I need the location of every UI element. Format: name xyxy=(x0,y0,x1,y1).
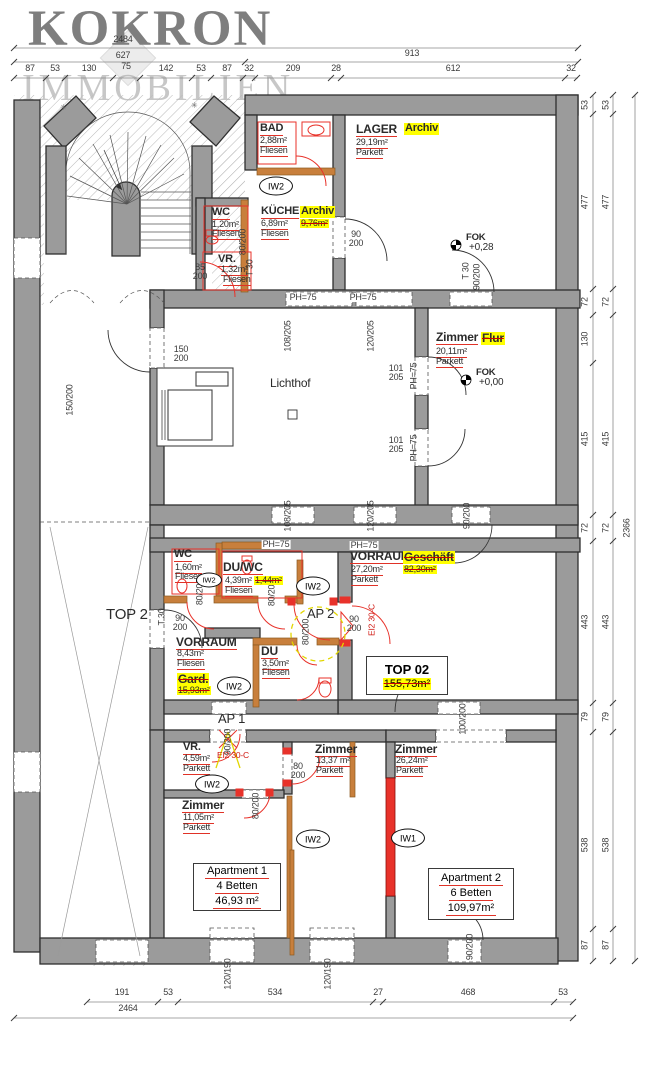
plan-label-104: +0,00 xyxy=(479,378,503,389)
plan-label-70: 90 200 xyxy=(173,614,187,633)
plan-label-136: Parkett xyxy=(183,823,210,834)
plan-label-69: EI2 30-C xyxy=(368,604,377,636)
plan-label-71: T 30 xyxy=(157,608,166,625)
plan-label-115: 82,30m² xyxy=(403,565,437,574)
room-zimmer-flur-newuse: Flur xyxy=(481,332,505,345)
apartment2-box-line: 6 Betten xyxy=(449,887,494,901)
wall-openings xyxy=(14,217,506,962)
plan-label-7: 142 xyxy=(159,64,173,73)
plan-label-19: 415 xyxy=(580,432,589,446)
plan-label-133: Parkett xyxy=(316,766,343,777)
room-duwc-name: DU/WC xyxy=(223,561,263,575)
plan-label-5: 130 xyxy=(82,64,96,73)
plan-label-64: PH=75 xyxy=(262,540,291,549)
plan-label-99: Parkett xyxy=(436,357,463,368)
dim-total-bottom: 2464 xyxy=(118,1004,137,1013)
plan-label-29: 72 xyxy=(601,523,610,533)
dim-total-top: 2484 xyxy=(113,35,132,44)
plan-label-73: 100/200 xyxy=(458,703,467,734)
plan-label-9: 87 xyxy=(222,64,232,73)
plan-label-40: 53 xyxy=(558,988,568,997)
plan-label-50: 90/200 xyxy=(472,264,481,290)
plan-label-63: 90/200 xyxy=(462,503,471,529)
plan-label-102: +0,28 xyxy=(469,243,493,254)
plan-label-61: 108/205 xyxy=(283,500,292,531)
room-wc2-name: WC xyxy=(174,549,192,562)
plan-label-37: 534 xyxy=(268,988,282,997)
plan-label-80: Fliesen xyxy=(260,146,288,157)
plan-label-11: 209 xyxy=(286,64,300,73)
plan-label-116: Parkett xyxy=(351,575,378,586)
plan-label-110: 1,44m² xyxy=(254,576,283,585)
plan-label-87: Fliesen xyxy=(212,229,240,240)
plan-label-91: 9,76m² xyxy=(300,219,329,228)
plan-label-24: 87 xyxy=(580,940,589,950)
plan-label-17: 72 xyxy=(580,297,589,307)
wall-type-oval-iw2-0: IW2 xyxy=(259,177,293,196)
apartment2-box-line: Apartment 2 xyxy=(439,872,503,886)
plan-label-23: 538 xyxy=(580,838,589,852)
wall-type-oval-iw2-3: IW2 xyxy=(217,677,251,696)
wall-type-oval-iw1-6: IW1 xyxy=(391,829,425,848)
top02-box-line: TOP 02 xyxy=(385,662,429,677)
plan-label-140: ✳ xyxy=(60,104,67,112)
apartment1-box-line: Apartment 1 xyxy=(205,865,269,879)
top02-box-line: 155,73m² xyxy=(383,678,431,690)
plan-label-56: 120/205 xyxy=(366,320,375,351)
room-vorraum2-newuse: Gard. xyxy=(177,673,209,686)
ap2-label: AP 2 xyxy=(307,607,334,621)
plan-label-25: 53 xyxy=(601,100,610,110)
plan-label-58: PH=75 xyxy=(409,363,418,390)
plan-label-59: 101 205 xyxy=(389,436,403,455)
plan-label-14: 32 xyxy=(566,64,576,73)
plan-label-123: 15,93m² xyxy=(177,686,211,695)
plan-label-141: ✳ xyxy=(191,102,198,110)
plan-label-76: 80 200 xyxy=(291,762,305,781)
wall-type-oval-iw2-1: IW2 xyxy=(196,573,222,588)
plan-label-54: PH=75 xyxy=(349,293,378,302)
room-lager-newuse: Archiv xyxy=(404,123,439,135)
apartment2-box: Apartment 26 Betten109,97m² xyxy=(428,868,514,920)
plan-label-4: 53 xyxy=(50,64,60,73)
plan-label-10: 32 xyxy=(244,64,254,73)
plan-label-139: Parkett xyxy=(396,766,423,777)
plan-label-57: 101 205 xyxy=(389,364,403,383)
plan-label-53: PH=75 xyxy=(289,293,318,302)
plan-label-15: 53 xyxy=(580,100,589,110)
plan-label-20: 72 xyxy=(580,523,589,533)
plan-label-92: Fliesen xyxy=(261,229,289,240)
plan-label-55: 108/205 xyxy=(283,320,292,351)
room-zimmer1105-name: Zimmer xyxy=(182,799,224,813)
plan-label-42: 120/190 xyxy=(223,958,232,989)
room-vorraum1-name: VORRAUM xyxy=(350,550,411,564)
plan-label-126: Fliesen xyxy=(262,668,290,679)
plan-label-35: 191 xyxy=(115,988,129,997)
floorplan-page: KOKRON IMMOBILIEN xyxy=(0,0,668,1080)
plan-label-1: 627 xyxy=(116,51,130,60)
plan-label-8: 53 xyxy=(196,64,206,73)
plan-label-43: 120/190 xyxy=(323,958,332,989)
room-vorraum1-newuse: Geschäft xyxy=(403,551,455,564)
plan-label-52: 150/200 xyxy=(65,384,74,415)
plan-label-130: Parkett xyxy=(183,764,210,775)
lichthof-label: Lichthof xyxy=(270,377,310,390)
plan-label-32: 538 xyxy=(601,838,610,852)
plan-label-48: 90 200 xyxy=(349,230,363,249)
plan-label-27: 72 xyxy=(601,297,610,307)
plan-label-51: 150 200 xyxy=(174,345,188,364)
room-lager-name: LAGER xyxy=(356,123,397,137)
plan-label-3: 87 xyxy=(25,64,35,73)
wall-type-oval-iw2-5: IW2 xyxy=(296,830,330,849)
plan-label-46: 85 200 xyxy=(193,263,207,282)
plan-label-28: 415 xyxy=(601,432,610,446)
apartment1-box-line: 4 Betten xyxy=(215,880,260,894)
plan-label-111: Fliesen xyxy=(225,586,253,597)
plan-label-12: 28 xyxy=(331,64,341,73)
plan-label-84: Parkett xyxy=(356,148,383,159)
apartment1-box-line: 46,93 m² xyxy=(213,895,260,909)
plan-label-77: 80/200 xyxy=(251,793,260,819)
elevator xyxy=(157,368,233,446)
plan-label-62: 120/205 xyxy=(366,500,375,531)
plan-label-60: PH=75 xyxy=(409,435,418,462)
plan-label-36: 53 xyxy=(163,988,173,997)
lichthof-marker xyxy=(288,410,297,419)
room-kueche-newuse: Archiv xyxy=(300,206,335,218)
plan-label-39: 468 xyxy=(461,988,475,997)
room-zimmer-flur-name: Zimmer xyxy=(436,331,478,345)
plan-label-75: EI2 30-C xyxy=(217,751,249,760)
wall-type-oval-iw2-4: IW2 xyxy=(195,775,229,794)
plan-label-31: 79 xyxy=(601,712,610,722)
plan-label-21: 443 xyxy=(580,615,589,629)
plan-label-38: 27 xyxy=(373,988,383,997)
plan-label-22: 79 xyxy=(580,712,589,722)
plan-label-30: 443 xyxy=(601,615,610,629)
floor-plan-drawing xyxy=(0,0,668,1080)
wall-type-oval-iw2-2: IW2 xyxy=(296,577,330,596)
top2-label: TOP 2 xyxy=(106,607,148,623)
plan-label-13: 612 xyxy=(446,64,460,73)
plan-label-49: T 30 xyxy=(461,262,470,279)
top02-box: TOP 02155,73m² xyxy=(366,656,448,695)
plan-label-18: 130 xyxy=(580,332,589,346)
dim-total-right: 2366 xyxy=(622,518,631,537)
plan-label-6: 75 xyxy=(121,62,131,71)
plan-label-68: 90 200 xyxy=(347,615,361,634)
plan-label-95: Fliesen xyxy=(223,275,251,286)
plan-label-121: Fliesen xyxy=(177,659,205,670)
plan-label-44: 90/200 xyxy=(465,934,474,960)
plan-label-26: 477 xyxy=(601,195,610,209)
apartment1-box: Apartment 14 Betten46,93 m² xyxy=(193,863,281,911)
plan-label-72: 80/200 xyxy=(301,619,310,645)
room-du-name: DU xyxy=(261,645,278,659)
plan-label-16: 477 xyxy=(580,195,589,209)
apartment2-box-line: 109,97m² xyxy=(446,902,496,916)
plan-label-2: 913 xyxy=(405,49,419,58)
plan-label-33: 87 xyxy=(601,940,610,950)
ap1-label: AP 1 xyxy=(218,712,245,726)
